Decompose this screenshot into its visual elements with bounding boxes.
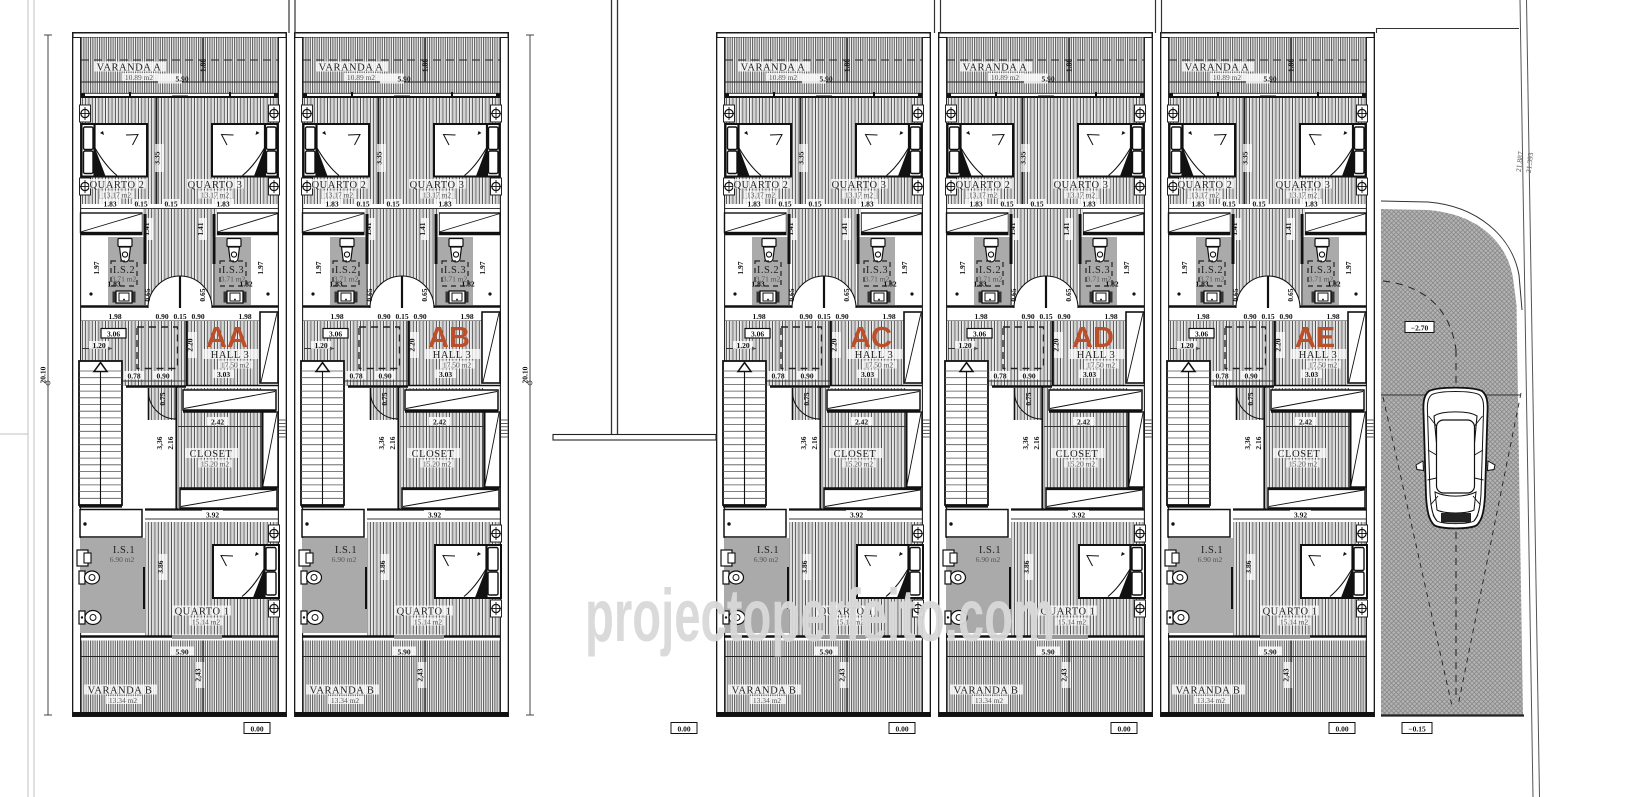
svg-text:−2.70: −2.70 <box>1411 324 1429 333</box>
svg-text:0.00: 0.00 <box>1117 725 1130 734</box>
svg-text:AB: AB <box>428 322 470 354</box>
svg-text:20.10: 20.10 <box>39 366 48 383</box>
svg-text:21.393: 21.393 <box>1524 152 1535 174</box>
svg-text:projectoperfeito.com: projectoperfeito.com <box>585 574 1055 657</box>
svg-text:20.10: 20.10 <box>521 366 530 383</box>
svg-text:0.00: 0.00 <box>895 725 908 734</box>
svg-text:0.00: 0.00 <box>677 725 690 734</box>
svg-text:−0.15: −0.15 <box>1408 725 1426 734</box>
svg-text:AE: AE <box>1295 322 1335 354</box>
svg-text:0.00: 0.00 <box>250 725 263 734</box>
svg-text:AA: AA <box>206 322 248 354</box>
svg-text:AD: AD <box>1072 322 1114 354</box>
svg-text:0.00: 0.00 <box>1335 725 1348 734</box>
svg-text:AC: AC <box>850 322 892 354</box>
